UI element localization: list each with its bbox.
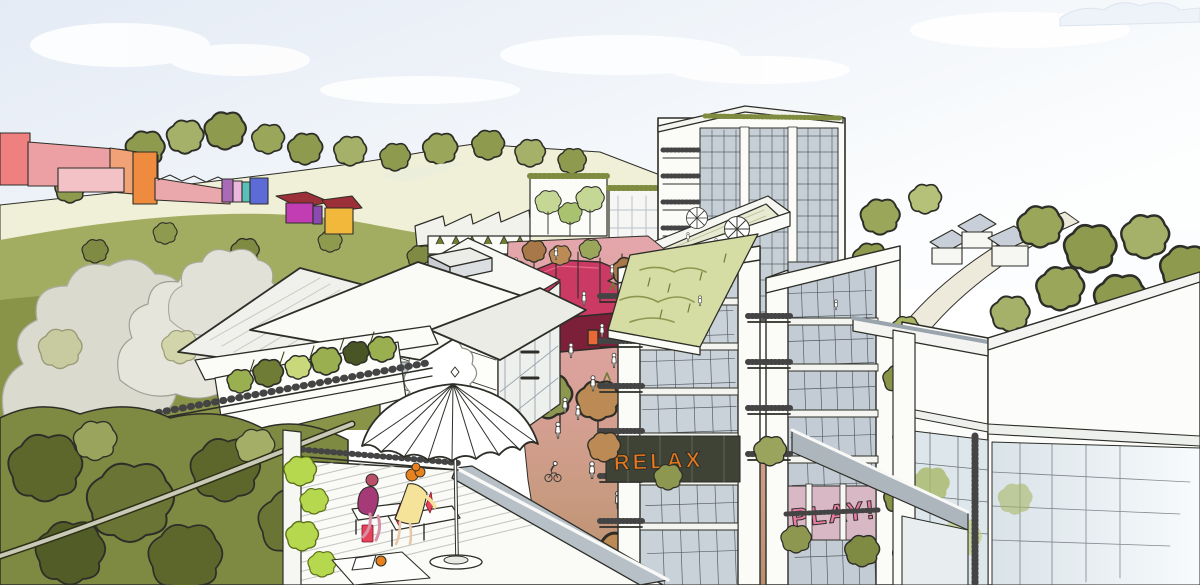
relax-sign-zone: RELAX — [588, 433, 740, 491]
masterplan-sketch: RELAX PLAY! — [0, 0, 1200, 585]
terrace-wall — [283, 430, 301, 585]
mini-parasol — [687, 208, 708, 229]
masterplan-illustration: RELAX PLAY! — [0, 0, 1200, 585]
pavilion-door-glow — [588, 330, 598, 345]
